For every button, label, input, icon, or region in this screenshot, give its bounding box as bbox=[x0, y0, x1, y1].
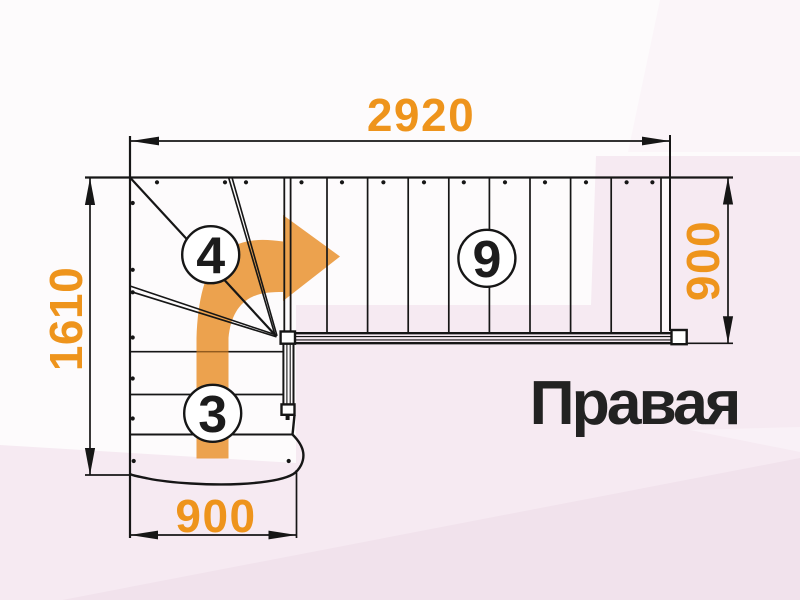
svg-text:Правая: Правая bbox=[530, 368, 739, 438]
svg-text:2920: 2920 bbox=[367, 89, 475, 141]
svg-text:3: 3 bbox=[198, 386, 227, 444]
svg-text:900: 900 bbox=[677, 220, 729, 301]
svg-text:900: 900 bbox=[175, 490, 256, 542]
svg-text:9: 9 bbox=[472, 231, 501, 289]
svg-text:4: 4 bbox=[196, 227, 225, 285]
svg-text:1610: 1610 bbox=[40, 267, 92, 371]
